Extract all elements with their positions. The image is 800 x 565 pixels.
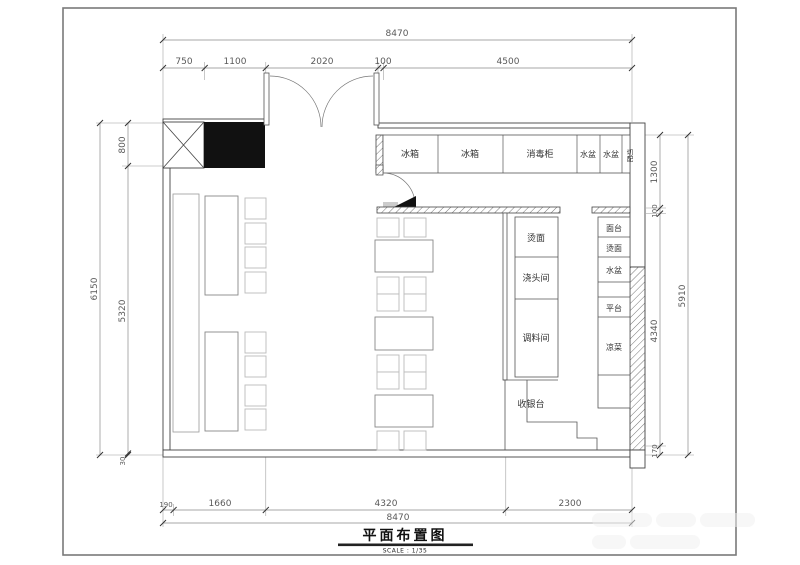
hatched-partition: [377, 207, 630, 213]
solid-wall-block: [204, 122, 265, 168]
kitchen-top-counter: 冰箱 冰箱 消毒柜 水盆 水盆: [376, 135, 630, 173]
left-dining-area: [173, 194, 266, 432]
corner-prep-label: 切配: [621, 139, 632, 172]
dim-bottom-2300: 2300: [559, 499, 582, 509]
dim-left-800: 800: [118, 136, 128, 153]
floor-plan-page: 8470 750 1100 2020 100 4500 6150 800 532…: [0, 0, 800, 565]
door-swing-arc-left: [270, 76, 321, 127]
table-a: [375, 240, 433, 272]
drawing-scale: SCALE : 1/35: [383, 548, 428, 555]
dim-right-1300: 1300: [650, 160, 660, 183]
dim-left-30: 30: [119, 457, 127, 466]
fridge-2-label: 冰箱: [461, 148, 479, 160]
seasoning-room-label: 调料间: [522, 332, 549, 344]
middle-dining-area: [375, 218, 433, 450]
dim-bottom-overall: 8470: [387, 513, 410, 523]
dim-top-1100: 1100: [224, 57, 247, 67]
sink-2-label: 水盆: [603, 149, 619, 159]
sink-counter-label: 水盆: [606, 265, 622, 275]
dim-right-170: 170: [651, 444, 659, 457]
bench-seat: [173, 194, 199, 432]
sterilizer-label: 消毒柜: [526, 148, 553, 160]
cashier-label: 收银台: [517, 398, 544, 410]
dim-top-4500: 4500: [497, 57, 520, 67]
dim-bottom-4320: 4320: [375, 499, 398, 509]
entrance-double-door: [264, 73, 379, 127]
fridge-1-label: 冰箱: [401, 148, 419, 160]
cashier-counter: 收银台: [505, 380, 597, 450]
drawing-title: 平面布置图: [363, 527, 448, 544]
dim-left-overall: 6150: [90, 277, 100, 300]
column-shaft: [163, 122, 204, 168]
dim-left-5320: 5320: [118, 299, 128, 322]
right-counter-column: 面台 烫面 水盆 平台 凉菜: [598, 217, 630, 408]
floor-plan-svg: 8470 750 1100 2020 100 4500 6150 800 532…: [0, 0, 800, 565]
dim-top-overall: 8470: [386, 29, 409, 39]
hot-noodle-room-label: 烫面: [527, 233, 545, 244]
long-table-2: [205, 332, 238, 431]
noodle-counter-label: 面台: [606, 223, 622, 233]
table-b: [375, 317, 433, 350]
right-hatched-wall: [630, 267, 645, 450]
title-block: 平面布置图 SCALE : 1/35: [338, 527, 473, 555]
cold-dish-label: 凉菜: [606, 342, 622, 352]
dim-right-4340: 4340: [650, 319, 660, 342]
table-c: [375, 395, 433, 427]
dim-bottom-190: 190: [159, 501, 172, 509]
long-table-1: [205, 196, 238, 295]
dim-bottom-1660: 1660: [209, 499, 232, 509]
topping-room-label: 浇头间: [522, 272, 549, 284]
dim-right-overall: 5910: [678, 284, 688, 307]
chairs-left: [245, 198, 266, 430]
hot-noodle-counter-label: 烫面: [606, 243, 622, 253]
mid-room-block: 烫面 浇头间 调料间: [503, 213, 558, 380]
platform-label: 平台: [606, 303, 622, 313]
dim-top-750: 750: [175, 57, 192, 67]
sink-1-label: 水盆: [580, 149, 596, 159]
dim-top-100: 100: [374, 57, 391, 67]
dim-top-2020: 2020: [311, 57, 334, 67]
door-swing-arc-right: [322, 76, 373, 127]
dim-right-100: 100: [651, 204, 659, 217]
